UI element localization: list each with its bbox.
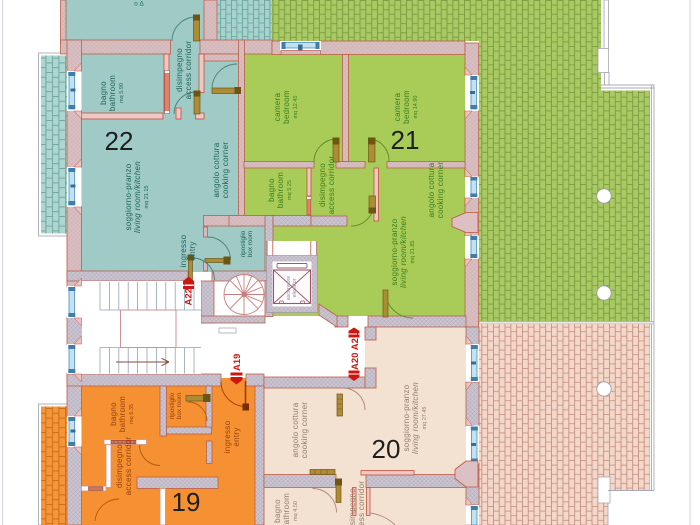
- svg-text:ingresso: ingresso: [223, 420, 232, 453]
- svg-text:angolo cottura: angolo cottura: [427, 162, 436, 217]
- svg-text:soggiorno-pranzo: soggiorno-pranzo: [124, 163, 133, 230]
- svg-text:bagno: bagno: [99, 81, 108, 105]
- svg-text:A19: A19: [232, 354, 243, 371]
- svg-text:camera: camera: [273, 93, 282, 122]
- svg-text:mq 5.25: mq 5.25: [287, 180, 293, 200]
- svg-text:mq 5.90: mq 5.90: [119, 83, 125, 103]
- svg-text:access corridor: access corridor: [357, 481, 366, 525]
- svg-text:cooking corner: cooking corner: [300, 402, 309, 459]
- svg-text:bagno: bagno: [109, 402, 118, 426]
- svg-text:bathroom: bathroom: [282, 493, 291, 525]
- svg-text:mq 4.50: mq 4.50: [293, 501, 299, 521]
- svg-text:elevator: elevator: [292, 278, 298, 297]
- svg-text:mq 12.45: mq 12.45: [293, 96, 299, 119]
- svg-text:21: 21: [391, 125, 420, 155]
- svg-text:soggiorno-pranzo: soggiorno-pranzo: [390, 218, 399, 285]
- svg-text:disimpegno: disimpegno: [318, 163, 327, 207]
- svg-text:bagno: bagno: [267, 178, 276, 202]
- svg-text:disimpegno: disimpegno: [115, 444, 124, 488]
- svg-text:mq 21.15: mq 21.15: [144, 186, 150, 209]
- svg-text:entry: entry: [188, 241, 197, 260]
- svg-text:mq 27.45: mq 27.45: [422, 407, 428, 430]
- svg-text:mq 21.85: mq 21.85: [410, 241, 416, 264]
- svg-text:access corridor: access corridor: [327, 156, 336, 215]
- svg-text:box room: box room: [247, 231, 254, 257]
- svg-text:bedroom: bedroom: [402, 90, 411, 124]
- svg-text:living room/kitchen: living room/kitchen: [399, 216, 408, 288]
- svg-text:disimpegno: disimpegno: [348, 488, 357, 525]
- svg-text:bathroom: bathroom: [118, 396, 127, 432]
- svg-text:living room/kitchen: living room/kitchen: [133, 161, 142, 233]
- svg-text:mq 6.35: mq 6.35: [129, 404, 135, 424]
- svg-text:bathroom: bathroom: [276, 172, 285, 208]
- svg-text:cooking corner: cooking corner: [436, 162, 445, 219]
- svg-text:bagno: bagno: [273, 499, 282, 523]
- svg-text:soggiorno-pranzo: soggiorno-pranzo: [402, 384, 411, 451]
- svg-text:bedroom: bedroom: [282, 90, 291, 124]
- svg-text:access corridor: access corridor: [184, 41, 193, 100]
- svg-text:box room: box room: [176, 393, 183, 419]
- svg-text:angolo cottura: angolo cottura: [212, 142, 221, 197]
- svg-text:camera: camera: [393, 93, 402, 122]
- svg-text:disimpegno: disimpegno: [175, 48, 184, 92]
- svg-text:living room/kitchen: living room/kitchen: [411, 382, 420, 454]
- svg-text:o Δ: o Δ: [134, 1, 144, 8]
- svg-text:mq 14.90: mq 14.90: [413, 96, 419, 119]
- svg-text:A22: A22: [184, 288, 195, 305]
- svg-text:22: 22: [105, 126, 134, 156]
- svg-text:ingresso: ingresso: [179, 234, 188, 267]
- svg-text:20: 20: [372, 434, 401, 464]
- svg-text:ripostiglio: ripostiglio: [169, 392, 176, 419]
- svg-text:access corridor: access corridor: [124, 437, 133, 496]
- svg-text:A20 A21: A20 A21: [350, 332, 361, 370]
- svg-text:entry: entry: [232, 427, 241, 446]
- svg-text:angolo cottura: angolo cottura: [291, 402, 300, 457]
- svg-text:cooking corner: cooking corner: [221, 142, 230, 199]
- svg-text:19: 19: [172, 487, 201, 517]
- svg-text:ripostiglio: ripostiglio: [240, 230, 247, 257]
- svg-text:bathroom: bathroom: [108, 75, 117, 111]
